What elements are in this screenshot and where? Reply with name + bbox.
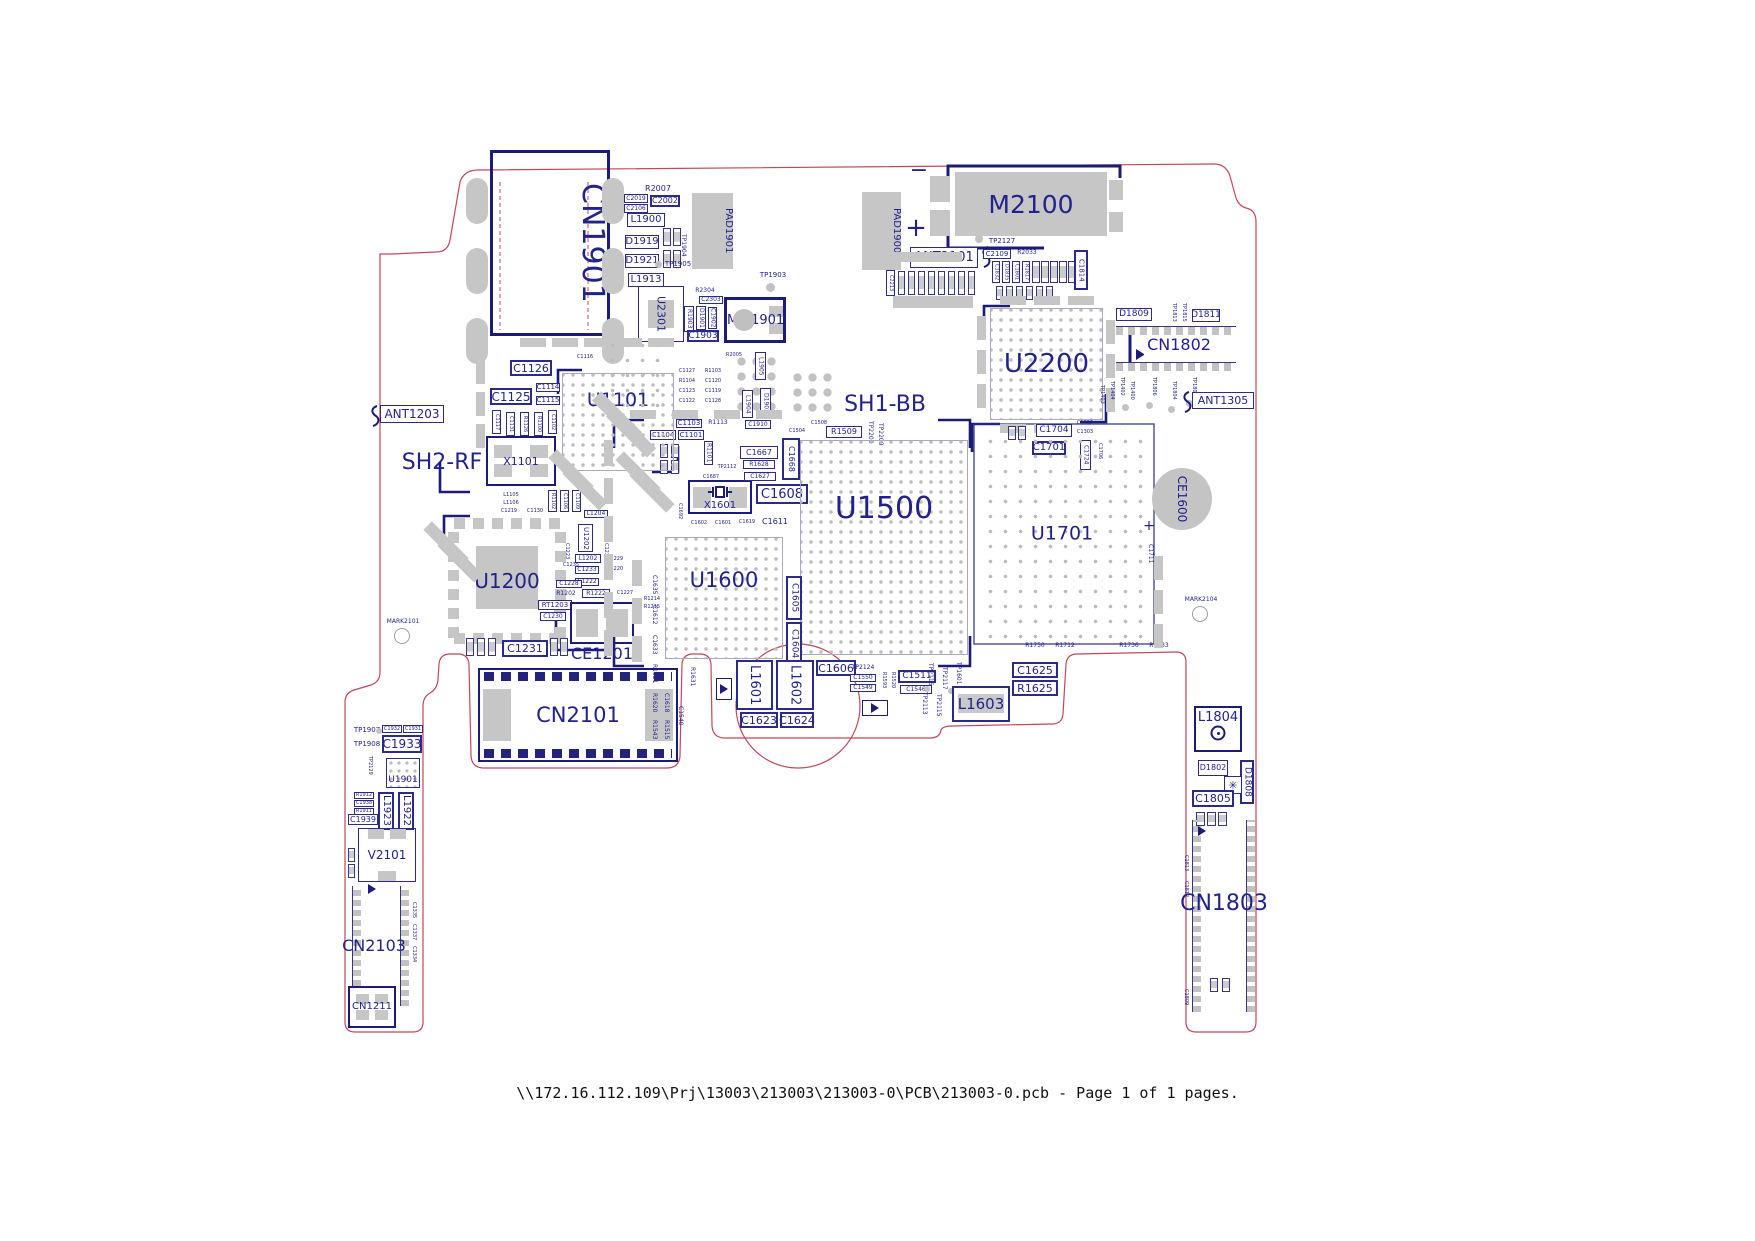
unlabeled-chip: [1026, 286, 1033, 300]
component-l1106: L1106: [500, 500, 522, 507]
component-c1504: C1504: [786, 428, 808, 435]
test-point-dot: [1168, 406, 1175, 413]
component-c1115: C1115: [536, 396, 560, 405]
shield-pad: [476, 392, 485, 416]
component-r1628: R1628: [743, 460, 775, 469]
component-cn1901: CN1901: [490, 150, 610, 336]
shield-pad: [604, 440, 613, 466]
component-c1602: C1602: [688, 520, 710, 527]
component-r1625: R1625: [1012, 680, 1058, 696]
component-r1620: R1620: [650, 690, 658, 716]
component-r1543: R1543: [650, 718, 658, 742]
component-r2033: R2033: [1014, 249, 1040, 256]
component-c1931: C1931: [403, 725, 423, 733]
connector-pin-row: [1116, 326, 1236, 335]
component-mark2101: MARK2101: [380, 618, 426, 626]
component-mic1901: MIC1901: [724, 297, 786, 343]
component-c1116: C1116: [574, 354, 596, 361]
shield-pad: [604, 478, 613, 504]
component-cn1803: CN1803: [1208, 834, 1240, 974]
shield-pad: [552, 338, 578, 347]
shield-pad: [604, 630, 613, 656]
component-label: X1601: [690, 501, 750, 511]
unlabeled-chip: [348, 864, 355, 878]
component-label: CE1201: [570, 646, 634, 662]
component-c1605: C1605: [786, 576, 802, 620]
shield-pad: [1109, 212, 1123, 232]
component-c1103: C1103: [676, 419, 702, 428]
component-c1334: C1334: [410, 944, 417, 964]
component-c1902: C1902: [708, 307, 717, 329]
shield-pad: [1109, 180, 1123, 200]
component-label: PAD1900: [862, 208, 901, 253]
shield-pad: [616, 338, 642, 347]
component-d1808: D1808: [1240, 760, 1254, 804]
component-l1603: L1603: [952, 686, 1010, 722]
diode-symbol-icon: [716, 678, 732, 700]
shield-pad: [604, 554, 613, 580]
component-r1202: R1202: [554, 590, 578, 597]
pcb-canvas: CN1901R2007C2019C2106C2002L1900D1919D192…: [0, 0, 1755, 1241]
unlabeled-chip: [1218, 812, 1227, 826]
unlabeled-chip: [918, 271, 925, 295]
component-c1611: C1611: [760, 517, 790, 526]
test-point-dot: [655, 261, 662, 268]
unlabeled-chip: [488, 638, 496, 656]
component-label: U1701: [978, 525, 1146, 544]
component-c1939: C1939: [348, 814, 378, 825]
unlabeled-chip: [1222, 978, 1230, 992]
component-d1901: D1901: [696, 306, 706, 330]
component-tp2127: TP2127: [986, 237, 1018, 245]
component-label: M2100: [955, 192, 1107, 217]
shield-pad: [630, 410, 656, 419]
component-c1126: C1126: [510, 360, 552, 376]
component-c1335: C1335: [410, 900, 417, 920]
component-c2002: C2002: [650, 195, 680, 207]
shield-pad: [977, 350, 986, 374]
shield-pad: [476, 424, 485, 448]
shield-pad: [1154, 624, 1163, 648]
shield-pad: [520, 338, 546, 347]
component-c1219: C1219: [498, 508, 520, 515]
component-cn1211: CN1211: [348, 986, 396, 1028]
unlabeled-chip: [663, 228, 671, 246]
component-r1103: R1103: [702, 368, 724, 375]
unlabeled-chip: [898, 271, 905, 295]
unlabeled-chip: [560, 638, 568, 656]
component-u1901: U1901: [386, 758, 420, 788]
component-m2100: M2100: [955, 172, 1107, 236]
component-l1804: L1804: [1194, 706, 1242, 752]
component-c2106: C2106: [624, 204, 648, 213]
unlabeled-chip: [908, 271, 915, 295]
component-l1900: L1900: [627, 213, 665, 227]
component-r1520: R1520: [889, 668, 896, 692]
component-cn1802: CN1802: [1144, 336, 1214, 354]
shield-pad: [632, 636, 642, 662]
component-u1200: U1200: [448, 518, 566, 644]
component-c1809: C1809: [1182, 986, 1189, 1008]
component-cn2103: CN2103: [362, 896, 386, 996]
component-tp1904: TP1904: [679, 230, 687, 260]
component-l1602: L1602: [776, 660, 814, 710]
component-label: U1901: [387, 776, 419, 785]
component-c1102: C1102: [548, 410, 557, 434]
component-d1919: D1919: [625, 235, 659, 249]
component-label: V2101: [359, 849, 415, 861]
unlabeled-chip: [938, 271, 945, 295]
test-point-dot: [1146, 402, 1153, 409]
component-c1633: C1633: [650, 632, 658, 658]
component-c1635: C1635: [650, 572, 658, 598]
component-r1113: R1113: [706, 419, 730, 426]
component-d1835: D1835: [1002, 261, 1010, 283]
component-c1910: C1910: [745, 420, 771, 429]
antenna-feed-icon: [368, 404, 380, 426]
unlabeled-chip: [466, 638, 474, 656]
component-c1228: C1228: [556, 580, 582, 588]
component-u1701: U1701: [978, 428, 1146, 640]
component-r2304: R2304: [692, 287, 718, 294]
test-point-dot: [1122, 404, 1129, 411]
component-r1712: R1712: [1052, 642, 1078, 649]
component-c1131: C1131: [506, 412, 515, 436]
component-c1127: C1127: [676, 368, 698, 375]
file-path: \\172.16.112.109\Prj\13003\213003\213003…: [0, 1084, 1755, 1102]
crystal-icon: [707, 486, 733, 498]
component-x1601: X1601: [688, 480, 752, 514]
component-c2109: C2109: [983, 249, 1011, 259]
component-label: U1600: [666, 570, 782, 591]
connector-pad: [602, 178, 624, 224]
component-c1227: C1227: [614, 590, 636, 597]
diode-symbol-icon: [862, 700, 888, 716]
shield-pad: [1106, 354, 1115, 378]
component-r1912: R1912: [354, 792, 374, 799]
component-tp1806: TP1806: [1150, 372, 1157, 400]
component-l1105: L1105: [500, 492, 522, 499]
antenna-feed-icon: [1180, 390, 1192, 414]
component-r1101: R1101: [704, 441, 713, 465]
component-mark2104: MARK2104: [1178, 596, 1224, 604]
component-ce1201: CE1201: [570, 602, 634, 662]
component-x1101: X1101: [486, 436, 556, 486]
component-tp1400: TP1400: [1128, 376, 1135, 404]
polarity-triangle-icon: [368, 884, 376, 894]
connector-pad: [466, 318, 488, 364]
component-tp1601: TP1601: [954, 660, 962, 686]
component-label: U1500: [801, 494, 967, 524]
component-tp1813: TP1813: [1170, 298, 1177, 326]
connector-pad: [466, 178, 488, 224]
component-r1621: R1621: [650, 661, 658, 687]
fiducial-mark: [394, 628, 410, 644]
shield-pad: [888, 252, 962, 262]
shield-pad: [648, 338, 674, 347]
shield-pad: [1154, 556, 1163, 580]
shield-pad: [1106, 320, 1115, 344]
component-r1126: R1126: [520, 412, 529, 436]
component-c1813: C1813: [1182, 852, 1189, 874]
shield-pad: [930, 210, 950, 236]
component-l1601: L1601: [736, 660, 773, 710]
component-c1623: C1623: [740, 712, 778, 728]
component-ce1600: CE1600: [1152, 468, 1212, 530]
component-l1905: L1905: [755, 352, 766, 380]
component-c1812: C1812: [1182, 878, 1189, 900]
component-c1122: C1122: [676, 398, 698, 405]
component-c1625: C1625: [1012, 662, 1058, 678]
component-c1601: C1601: [712, 520, 734, 527]
component-c1687: C1687: [700, 474, 722, 481]
shield-pad: [714, 410, 740, 419]
component-r1736: R1736: [1116, 642, 1142, 649]
shield-pad: [1000, 296, 1026, 305]
component-r1104: R1104: [676, 378, 698, 385]
component-c1231: C1231: [502, 640, 548, 657]
component-c1711: C1711: [1146, 540, 1154, 568]
shield-pad: [476, 360, 485, 384]
shield-pad: [1068, 296, 1094, 305]
component-−: −: [908, 160, 930, 182]
unlabeled-chip: [550, 638, 558, 656]
shield-pad: [977, 384, 986, 408]
component-tp1804: TP1804: [1170, 376, 1177, 404]
unlabeled-chip: [1207, 812, 1216, 826]
component-c1624: C1624: [780, 712, 814, 728]
component-cn2101: CN2101: [478, 668, 678, 762]
component-r1509: R1509: [826, 426, 862, 438]
unlabeled-chip: [948, 271, 955, 295]
component-c1120: C1120: [702, 378, 724, 385]
connector-pin-row: [1116, 362, 1236, 371]
connector-pad: [602, 248, 624, 294]
component-tp1815: TP1815: [1180, 298, 1187, 326]
component-c1667: C1667: [740, 446, 778, 459]
component-c1938: C1938: [354, 800, 374, 807]
component-c2019: C2019: [624, 194, 648, 203]
connector-pin-column: [1246, 820, 1255, 1012]
component-r1903: R1903: [684, 306, 694, 332]
shield-pad: [1154, 590, 1163, 614]
component-label: CN2101: [480, 705, 676, 726]
component-c1549: C1549: [850, 684, 876, 692]
unlabeled-chip: [1210, 978, 1218, 992]
component-tp2124: TP2124: [848, 664, 878, 671]
component-tp1404: TP1404: [1108, 376, 1115, 404]
shield-pad: [893, 296, 973, 308]
fiducial-mark: [1192, 606, 1208, 622]
shield-pad: [756, 410, 782, 419]
component-c1337: C1337: [410, 922, 417, 942]
connector-pin-column: [1192, 820, 1201, 1012]
component-u1202: U1202: [578, 524, 593, 552]
via-grid: [790, 370, 834, 418]
unlabeled-chip: [1032, 261, 1040, 283]
component-l1923: L1923: [378, 792, 394, 830]
component-r1817: R1817: [1022, 261, 1030, 283]
component-r1593: R1593: [880, 668, 887, 692]
component-r1750: R1750: [1022, 642, 1048, 649]
polarity-triangle-icon: [1136, 349, 1145, 360]
component-sh2-rf: SH2-RF: [396, 450, 488, 476]
component-c1230: C1230: [540, 612, 566, 621]
test-point-dot: [924, 686, 930, 692]
component-c1692: C1692: [676, 500, 683, 522]
polarity-triangle-icon: [1198, 826, 1206, 836]
component-ant1305: ANT1305: [1192, 392, 1254, 409]
component-label: CN1211: [350, 1002, 394, 1012]
component-l1922: L1922: [398, 792, 414, 830]
component-c1612: C1612: [650, 602, 658, 628]
capacitor-pads: [570, 602, 634, 644]
component-d1921: D1921: [625, 254, 659, 268]
component-c1130: C1130: [524, 508, 546, 515]
component-c1805: C1805: [1192, 790, 1234, 807]
shield-pad: [632, 598, 642, 624]
shield-pad: [977, 316, 986, 340]
component-c1627: C1627: [744, 472, 776, 481]
shield-pad: [584, 338, 610, 347]
shield-pad: [604, 592, 613, 618]
component-c1109: C1109: [572, 490, 581, 512]
component-+: +: [904, 214, 928, 242]
component-ant1203: ANT1203: [380, 405, 444, 423]
coil-ring-icon: [1211, 726, 1226, 741]
component-r1515: R1515: [662, 718, 670, 742]
component-pad1901: PAD1901: [692, 193, 733, 269]
component-v2101: V2101: [358, 828, 416, 882]
unlabeled-chip: [348, 848, 355, 862]
component-c2213: C2213: [886, 270, 895, 296]
mic-membrane-icon: [733, 309, 755, 331]
component-label: U2301: [656, 296, 667, 332]
component-u2200: U2200: [990, 308, 1103, 420]
component-c1814: C1814: [1074, 250, 1088, 290]
antenna-feed-icon: [1180, 390, 1192, 412]
component-u1500: U1500: [800, 440, 968, 655]
shield-pad: [632, 560, 642, 586]
component-c1618: C1618: [662, 690, 670, 716]
component-c1119: C1119: [702, 388, 724, 395]
component-c1508: C1508: [808, 420, 830, 427]
connector-pad: [466, 248, 488, 294]
component-tp2117: TP2117: [940, 664, 948, 692]
test-point-dot: [766, 283, 775, 292]
unlabeled-chip: [477, 638, 485, 656]
component-tp2115: TP2115: [934, 692, 942, 718]
unlabeled-chip: [968, 271, 975, 295]
component-rt1203: RT1203: [538, 600, 572, 610]
component-c1668: C1668: [782, 438, 800, 480]
component-l1913: L1913: [628, 273, 664, 287]
component-sh1-bb: SH1-BB: [838, 392, 932, 418]
component-c1801: C1801: [1012, 261, 1020, 283]
component-r2005: R2005: [722, 352, 746, 359]
unlabeled-chip: [928, 271, 935, 295]
component-u1600: U1600: [665, 537, 783, 659]
antenna-feed-icon: [368, 404, 380, 428]
component-tp1403: TP1403: [1098, 380, 1105, 408]
component-c1128: C1128: [702, 398, 724, 405]
component-r2007: R2007: [641, 184, 675, 193]
component-c1106: C1106: [560, 490, 569, 512]
component-label: CN1901: [493, 183, 607, 303]
component-r1100: R1100: [534, 412, 543, 436]
component-label: U2200: [991, 351, 1102, 377]
component-c1550: C1550: [850, 674, 876, 682]
component-tp2113: TP2113: [920, 690, 928, 716]
component-tp2116: TP2116: [926, 660, 934, 688]
component-c1540: C1540: [676, 704, 684, 728]
shield-pad: [1034, 296, 1060, 305]
test-point-dot: [975, 235, 983, 243]
shield-pad: [930, 176, 950, 202]
shield-pad: [604, 516, 613, 542]
component-+: +: [1142, 518, 1156, 534]
component-r1102: R1102: [548, 490, 557, 512]
component-tp1905: TP1905: [663, 260, 693, 268]
component-c1114: C1114: [536, 383, 560, 392]
component-c1125: C1125: [490, 388, 532, 405]
component-c1832: C1832: [992, 261, 1000, 283]
component-tp2112: TP2112: [714, 464, 740, 471]
component-tp1402: TP1402: [1118, 372, 1125, 400]
component-label: L1804: [1196, 711, 1240, 724]
component-c1932: C1932: [382, 725, 402, 733]
component-label: CE1600: [1176, 476, 1188, 523]
component-c1123: C1123: [676, 388, 698, 395]
component-d1802: D1802: [1198, 760, 1228, 776]
component-l1904: L1904: [742, 390, 753, 418]
unlabeled-chip: [1050, 261, 1058, 283]
unlabeled-chip: [1059, 261, 1067, 283]
component-d1811: D1811: [1192, 309, 1220, 322]
component-tp2129: TP2129: [366, 752, 373, 778]
component-c1302: C1302: [1074, 420, 1096, 427]
component-tp1908: TP1908: [350, 740, 384, 748]
component-c1235: C1235: [560, 562, 582, 569]
component-label: X1101: [488, 456, 554, 467]
unlabeled-chip: [958, 271, 965, 295]
component-r1631: R1631: [688, 664, 696, 690]
component-c2303: C2303: [699, 296, 723, 304]
component-d1809: D1809: [1116, 308, 1152, 321]
component-c1619: C1619: [736, 519, 758, 526]
component-c1101: C1101: [678, 430, 704, 440]
component-c1903: C1903: [687, 330, 719, 342]
component-label: PAD1901: [692, 208, 733, 253]
unlabeled-chip: [1041, 261, 1049, 283]
component-c1933: C1933: [382, 735, 422, 753]
component-tp1903: TP1903: [758, 271, 788, 279]
component-c1117: C1117: [492, 410, 501, 434]
shield-pad: [672, 410, 698, 419]
